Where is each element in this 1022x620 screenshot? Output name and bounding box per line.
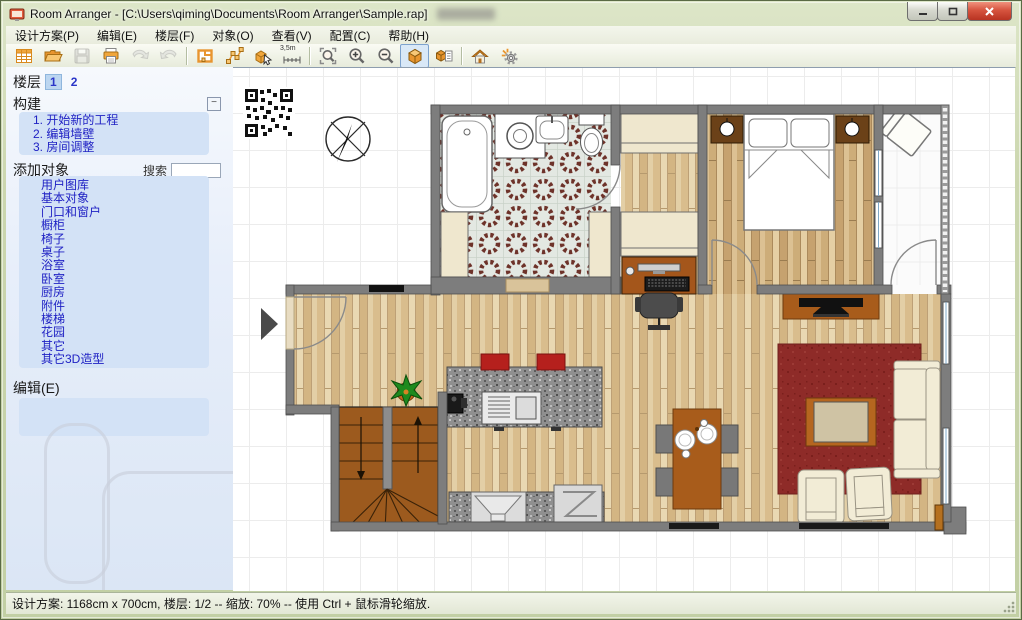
build-step-new-project[interactable]: 1. 开始新的工程 [33, 114, 209, 128]
menu-view[interactable]: 查看(V) [263, 26, 321, 45]
toolbar-separator [186, 47, 187, 65]
menu-config[interactable]: 配置(C) [321, 26, 380, 45]
build-steps-panel: 1. 开始新的工程 2. 编辑墙壁 3. 房间调整 [19, 112, 209, 155]
gear-spark-icon [499, 46, 519, 66]
menu-bar: 设计方案(P) 编辑(E) 楼层(F) 对象(O) 查看(V) 配置(C) 帮助… [6, 26, 1016, 45]
category-tables[interactable]: 桌子 [41, 246, 209, 259]
build-step-room-adjust[interactable]: 3. 房间调整 [33, 141, 209, 155]
measure-icon-label: 3,5m [280, 45, 296, 52]
bathroom-cabinet[interactable] [441, 212, 468, 277]
staircase[interactable] [336, 407, 444, 530]
sofa[interactable] [894, 361, 940, 478]
close-button[interactable] [967, 2, 1012, 21]
redo-arrow-icon [159, 46, 179, 66]
bathroom-sink[interactable] [536, 116, 568, 143]
floor-tab-2[interactable]: 2 [66, 74, 83, 90]
qr-code[interactable] [243, 87, 295, 139]
floor-tab-1[interactable]: 1 [45, 74, 62, 90]
category-user-library[interactable]: 用户图库 [41, 179, 209, 192]
menu-floor[interactable]: 楼层(F) [146, 26, 203, 45]
door-threshold [506, 279, 549, 292]
pan-marker-icon[interactable] [261, 308, 278, 340]
category-chairs[interactable]: 椅子 [41, 233, 209, 246]
zoom-in-button[interactable] [342, 44, 371, 68]
open-button[interactable] [38, 44, 67, 68]
app-icon [9, 6, 25, 22]
floors-label: 楼层 [13, 72, 41, 92]
bathroom-cabinet[interactable] [589, 212, 614, 277]
window-title: Room Arranger - [C:\Users\qiming\Documen… [30, 7, 427, 21]
edit-walls-button[interactable] [190, 44, 219, 68]
menu-edit[interactable]: 编辑(E) [88, 26, 146, 45]
categories-panel: 用户图库 基本对象 门口和窗户 橱柜 椅子 桌子 浴室 卧室 厨房 附件 楼梯 … [19, 176, 209, 368]
nightstand[interactable] [711, 116, 743, 143]
new-project-button[interactable] [9, 44, 38, 68]
zoom-out-button[interactable] [371, 44, 400, 68]
title-bar[interactable]: Room Arranger - [C:\Users\qiming\Documen… [2, 2, 1020, 26]
tv-stand[interactable] [783, 294, 879, 319]
floppy-icon [72, 46, 92, 66]
category-accessories[interactable]: 附件 [41, 300, 209, 313]
category-bathroom[interactable]: 浴室 [41, 259, 209, 272]
floor-plan[interactable] [233, 68, 1015, 591]
watermark-shape [102, 471, 234, 590]
kitchen-island[interactable] [447, 367, 602, 431]
compass[interactable] [326, 117, 370, 162]
print-button[interactable] [96, 44, 125, 68]
zoom-fit-button[interactable] [313, 44, 342, 68]
redo-button[interactable] [154, 44, 183, 68]
minimize-button[interactable] [907, 2, 938, 21]
measure-button[interactable]: 3,5m [277, 44, 306, 68]
magnifier-plus-icon [347, 46, 367, 66]
watermark-shape [44, 423, 110, 584]
undo-button[interactable] [125, 44, 154, 68]
door-threshold [286, 297, 294, 349]
collapse-button[interactable]: − [207, 97, 221, 111]
maximize-button[interactable] [937, 2, 968, 21]
bar-stool[interactable] [481, 354, 509, 370]
sidebar: 楼层 1 2 构建 − 1. 开始新的工程 2. 编辑墙壁 3. 房间调整 添加… [6, 67, 234, 590]
grid-document-icon [14, 46, 34, 66]
balcony-railing[interactable] [941, 105, 949, 294]
insert-object-button[interactable] [248, 44, 277, 68]
category-other-3d[interactable]: 其它3D造型 [41, 353, 209, 366]
category-basic-objects[interactable]: 基本对象 [41, 192, 209, 205]
house-icon [470, 46, 490, 66]
box-cursor-icon [253, 46, 273, 66]
view-3d-button[interactable] [400, 44, 429, 68]
radiator[interactable] [669, 523, 719, 529]
wall-radiator[interactable] [369, 285, 404, 292]
folder-icon [43, 46, 63, 66]
toolbar: 3,5m [6, 44, 1016, 68]
category-cabinets[interactable]: 橱柜 [41, 219, 209, 232]
toolbar-separator [461, 47, 462, 65]
menu-design[interactable]: 设计方案(P) [6, 26, 88, 45]
edit-points-button[interactable] [219, 44, 248, 68]
save-button[interactable] [67, 44, 96, 68]
settings-run-button[interactable] [494, 44, 523, 68]
redacted-text [437, 8, 495, 20]
build-label: 构建 [13, 94, 41, 114]
category-doors-windows[interactable]: 门口和窗户 [41, 206, 209, 219]
magnifier-brackets-icon [318, 46, 338, 66]
cube-icon [405, 46, 425, 66]
undo-arrow-icon [130, 46, 150, 66]
armchair[interactable] [846, 467, 893, 521]
plan-canvas[interactable] [233, 67, 1015, 591]
coffee-table[interactable] [806, 398, 876, 446]
category-bedroom[interactable]: 卧室 [41, 273, 209, 286]
resize-grip[interactable] [1002, 600, 1015, 613]
category-garden[interactable]: 花园 [41, 326, 209, 339]
armchair[interactable] [798, 470, 844, 524]
wall-fixture[interactable] [935, 505, 943, 530]
app-window: Room Arranger - [C:\Users\qiming\Documen… [0, 0, 1022, 620]
closet[interactable] [621, 212, 698, 256]
nightstand[interactable] [836, 116, 869, 143]
home-web-button[interactable] [465, 44, 494, 68]
double-bed[interactable] [744, 114, 834, 230]
cube-list-icon [434, 46, 454, 66]
category-kitchen[interactable]: 厨房 [41, 286, 209, 299]
toolbar-separator [309, 47, 310, 65]
floorplan-icon [195, 46, 215, 66]
toilet[interactable] [579, 114, 604, 156]
status-text: 设计方案: 1168cm x 700cm, 楼层: 1/2 -- 缩放: 70%… [12, 595, 430, 612]
status-bar: 设计方案: 1168cm x 700cm, 楼层: 1/2 -- 缩放: 70%… [6, 592, 1016, 614]
menu-help[interactable]: 帮助(H) [379, 26, 438, 45]
bar-stool[interactable] [537, 354, 565, 370]
vertices-icon [224, 46, 244, 66]
closet[interactable] [621, 113, 698, 153]
menu-object[interactable]: 对象(O) [203, 26, 262, 45]
edit-section-label: 编辑(E) [13, 378, 60, 398]
build-step-edit-walls[interactable]: 2. 编辑墙壁 [33, 128, 209, 142]
category-stairs[interactable]: 楼梯 [41, 313, 209, 326]
magnifier-minus-icon [376, 46, 396, 66]
bathtub[interactable] [442, 116, 492, 212]
edit-panel [19, 398, 209, 436]
computer-desk[interactable] [622, 257, 696, 294]
printer-icon [101, 46, 121, 66]
view-3d-list-button[interactable] [429, 44, 458, 68]
radiator[interactable] [799, 523, 889, 529]
